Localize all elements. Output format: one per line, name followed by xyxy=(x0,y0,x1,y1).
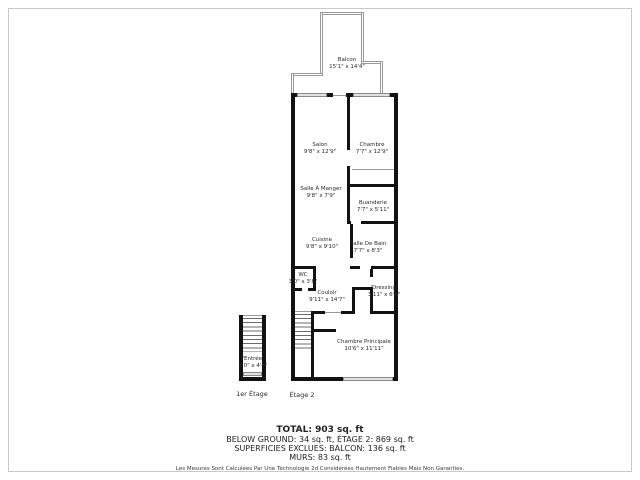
room-label-balcon: Balcon 15'1" x 14'4" xyxy=(307,57,387,70)
room-dims: 7'7" x 5'11" xyxy=(343,207,403,214)
wall-segment xyxy=(361,221,394,224)
room-label-couloir: Couloir 9'11" x 14'7" xyxy=(297,290,357,303)
floorplan-page: Balcon 15'1" x 14'4" Salon 9'8" x 12'9" … xyxy=(0,0,640,480)
summary-line2: BELOW GROUND: 34 sq. ft, ÉTAGE 2: 869 sq… xyxy=(70,435,570,444)
room-dims: 9'8" x 7'9" xyxy=(286,193,356,200)
wall-segment xyxy=(341,311,355,314)
summary-line3: SUPERFICIES EXCLUES: BALCON: 136 sq. ft xyxy=(70,444,570,453)
stairs-entree xyxy=(243,318,262,352)
room-dims: 7'7" x 8'3" xyxy=(338,248,398,255)
wall-segment xyxy=(291,377,343,381)
room-label-salle-de-bain: Salle De Bain 7'7" x 8'3" xyxy=(338,241,398,254)
room-dims: 3'0" x 4'8" xyxy=(238,363,268,370)
door-opening xyxy=(325,312,341,313)
railing-segment xyxy=(291,73,323,76)
room-label-chambre-principale: Chambre Principale 10'6" x 11'11" xyxy=(324,339,404,352)
railing-segment xyxy=(320,12,364,15)
summary-total: TOTAL: 903 sq. ft xyxy=(70,425,570,435)
wall-segment xyxy=(314,329,336,332)
wall-segment xyxy=(370,269,373,277)
wall-segment xyxy=(350,266,360,269)
railing-segment xyxy=(291,73,294,95)
room-dims: 3'0" x 3'8" xyxy=(288,279,318,286)
room-label-salle-a-manger: Salle À Manger 9'8" x 7'9" xyxy=(286,186,356,199)
room-label-buanderie: Buanderie 7'7" x 5'11" xyxy=(343,200,403,213)
room-dims: 7'7" x 12'9" xyxy=(342,149,402,156)
window xyxy=(343,377,393,381)
stair-opening xyxy=(243,315,262,316)
wall-segment xyxy=(311,311,314,381)
wall-segment xyxy=(239,377,266,381)
room-dims: 15'1" x 14'4" xyxy=(307,64,387,71)
window xyxy=(353,93,390,97)
area-summary: TOTAL: 903 sq. ft BELOW GROUND: 34 sq. f… xyxy=(70,425,570,473)
room-label-wc: WC 3'0" x 3'8" xyxy=(288,272,318,285)
window xyxy=(297,93,327,97)
closet-door-line xyxy=(352,169,394,170)
wall-segment xyxy=(393,377,398,381)
wall-segment xyxy=(262,315,266,381)
wall-segment xyxy=(371,266,394,269)
floor-label-etage-2: Étage 2 xyxy=(272,391,332,399)
wall-segment xyxy=(394,93,398,381)
summary-line4: MURS: 83 sq. ft xyxy=(70,453,570,462)
window xyxy=(243,372,262,376)
room-dims: 9'11" x 14'7" xyxy=(297,297,357,304)
room-dims: 10'6" x 11'11" xyxy=(324,346,404,353)
summary-disclaimer: Les Mesures Sont Calculées Par Une Techn… xyxy=(70,466,570,473)
room-label-chambre: Chambre 7'7" x 12'9" xyxy=(342,142,402,155)
room-label-entree: 'Entrée' 3'0" x 4'8" xyxy=(238,356,268,369)
balcony-door-opening xyxy=(333,95,346,96)
stair-opening xyxy=(295,311,311,312)
wall-segment xyxy=(370,311,394,314)
stairs-etage2 xyxy=(295,314,311,352)
room-dims: 3'11" x 6'5" xyxy=(364,292,404,299)
room-name: 'Entrée' xyxy=(238,356,268,363)
room-label-dressing: 'Dressing' 3'11" x 6'5" xyxy=(364,285,404,298)
